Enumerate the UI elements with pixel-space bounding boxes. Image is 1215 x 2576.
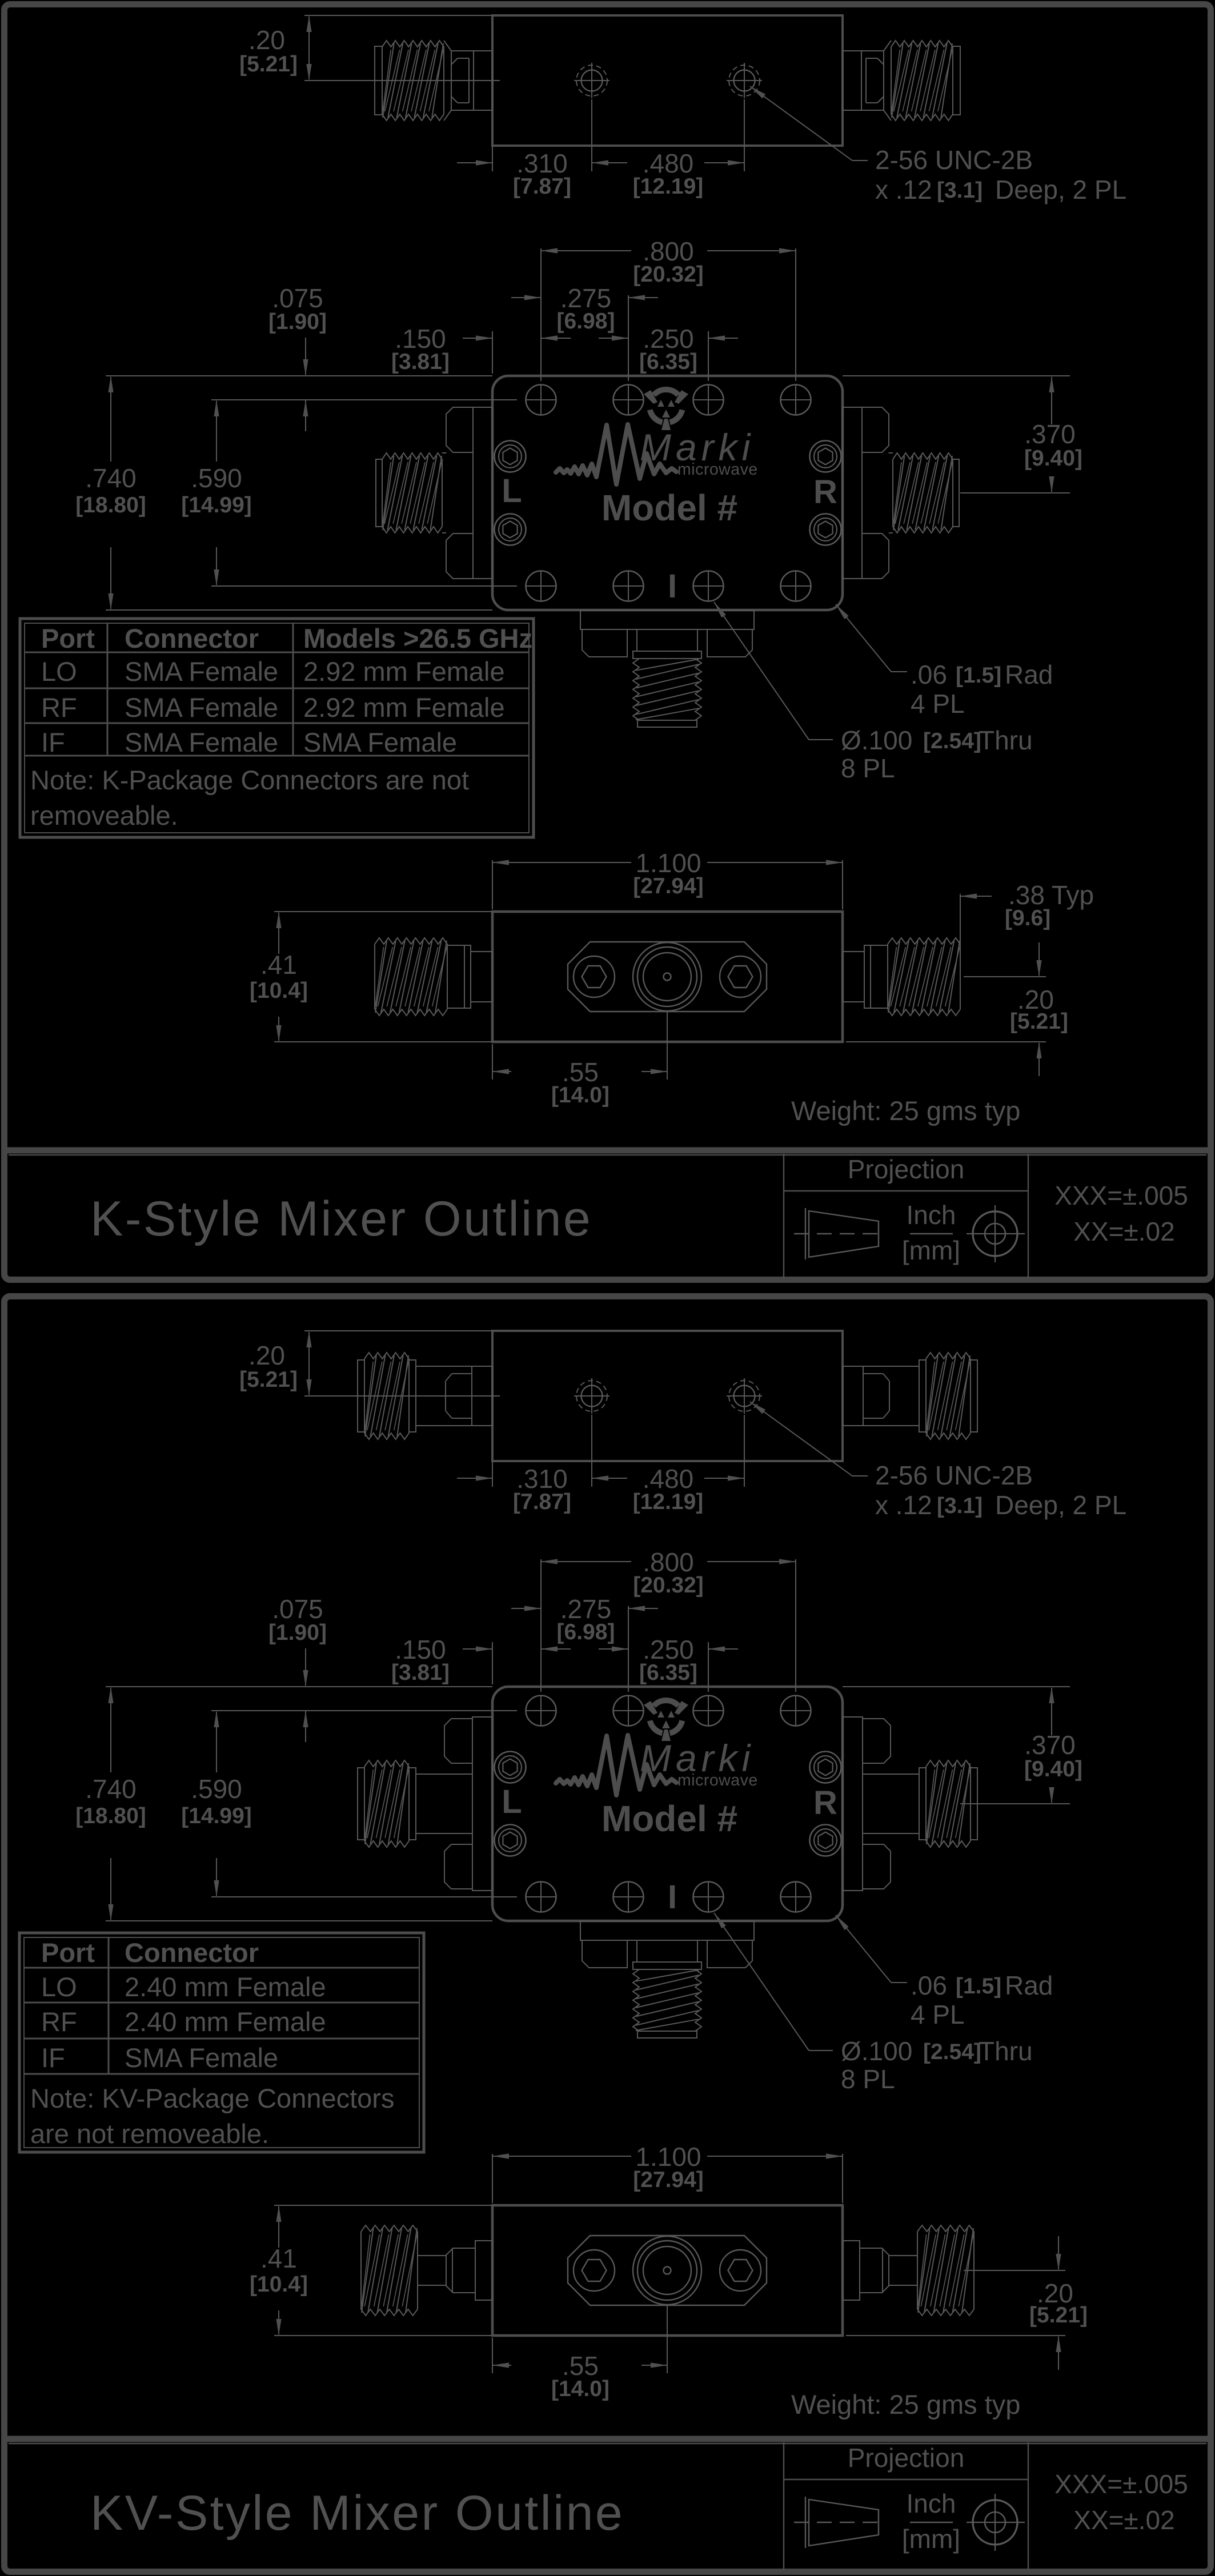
svg-text:[6.98]: [6.98] xyxy=(557,1620,615,1644)
svg-text:[9.6]: [9.6] xyxy=(1005,906,1050,930)
svg-text:[1.5]: [1.5] xyxy=(956,663,1001,688)
svg-text:Inch: Inch xyxy=(907,2489,956,2518)
svg-text:RF: RF xyxy=(41,2007,77,2037)
svg-text:[5.21]: [5.21] xyxy=(1010,1009,1068,1034)
svg-text:[12.19]: [12.19] xyxy=(633,174,704,199)
svg-text:[1.90]: [1.90] xyxy=(268,310,327,334)
svg-text:Weight: 25 gms typ: Weight: 25 gms typ xyxy=(791,1096,1020,1126)
svg-text:SMA Female: SMA Female xyxy=(125,656,278,687)
svg-text:Thru: Thru xyxy=(979,2036,1033,2066)
svg-text:.075: .075 xyxy=(272,283,323,313)
svg-text:RF: RF xyxy=(41,692,77,723)
svg-text:[20.32]: [20.32] xyxy=(633,262,704,287)
svg-text:Weight: 25 gms typ: Weight: 25 gms typ xyxy=(791,2389,1020,2419)
svg-text:I: I xyxy=(668,568,677,605)
svg-text:Ø.100: Ø.100 xyxy=(841,725,912,755)
svg-text:LO: LO xyxy=(41,1972,77,2002)
svg-text:Model #: Model # xyxy=(602,487,737,528)
svg-text:[9.40]: [9.40] xyxy=(1024,1757,1082,1781)
svg-text:microwave: microwave xyxy=(677,460,758,479)
svg-text:Connector: Connector xyxy=(125,623,259,653)
svg-text:x .12: x .12 xyxy=(875,175,932,204)
svg-text:2.92 mm Female: 2.92 mm Female xyxy=(303,692,505,723)
svg-text:2-56 UNC-2B: 2-56 UNC-2B xyxy=(875,1460,1033,1490)
svg-text:.370: .370 xyxy=(1024,419,1076,449)
svg-text:[6.35]: [6.35] xyxy=(639,350,697,374)
svg-text:[5.21]: [5.21] xyxy=(239,52,298,77)
svg-text:K-Style Mixer Outline: K-Style Mixer Outline xyxy=(90,1191,592,1246)
svg-text:[10.4]: [10.4] xyxy=(250,978,308,1003)
svg-text:removeable.: removeable. xyxy=(30,800,178,830)
svg-text:SMA Female: SMA Female xyxy=(125,2043,278,2073)
svg-text:8 PL: 8 PL xyxy=(841,753,895,783)
svg-text:[18.80]: [18.80] xyxy=(75,1804,146,1828)
svg-text:.370: .370 xyxy=(1024,1730,1076,1760)
svg-text:[6.35]: [6.35] xyxy=(639,1660,697,1685)
svg-text:Thru: Thru xyxy=(979,725,1033,755)
svg-text:Projection: Projection xyxy=(848,2443,965,2473)
svg-text:2-56 UNC-2B: 2-56 UNC-2B xyxy=(875,145,1033,175)
svg-text:Note: K-Package Connectors are: Note: K-Package Connectors are not xyxy=(30,765,469,795)
svg-text:Models >26.5 GHz: Models >26.5 GHz xyxy=(303,623,532,653)
svg-text:[7.87]: [7.87] xyxy=(513,174,571,199)
svg-text:.20: .20 xyxy=(248,25,285,55)
svg-text:4 PL: 4 PL xyxy=(911,689,965,719)
svg-text:Port: Port xyxy=(41,623,95,653)
svg-text:Rad: Rad xyxy=(1005,1971,1053,2000)
svg-text:LO: LO xyxy=(41,656,77,687)
svg-text:.740: .740 xyxy=(85,1774,137,1804)
svg-text:.41: .41 xyxy=(260,2244,297,2273)
svg-text:2.40 mm Female: 2.40 mm Female xyxy=(125,2007,326,2037)
svg-text:[3.1]: [3.1] xyxy=(937,178,983,203)
svg-text:x .12: x .12 xyxy=(875,1490,932,1520)
svg-text:2.92 mm Female: 2.92 mm Female xyxy=(303,656,505,687)
svg-text:.06: .06 xyxy=(911,1971,947,2000)
svg-text:[14.99]: [14.99] xyxy=(181,1804,252,1828)
svg-text:4 PL: 4 PL xyxy=(911,2000,965,2029)
svg-text:[3.81]: [3.81] xyxy=(391,1660,450,1685)
svg-text:.590: .590 xyxy=(191,463,242,493)
svg-text:Ø.100: Ø.100 xyxy=(841,2036,912,2066)
svg-text:[mm]: [mm] xyxy=(902,1235,960,1265)
svg-text:Deep, 2 PL: Deep, 2 PL xyxy=(995,1490,1126,1520)
svg-text:KV-Style Mixer Outline: KV-Style Mixer Outline xyxy=(90,2486,624,2541)
svg-text:Deep, 2 PL: Deep, 2 PL xyxy=(995,175,1126,204)
svg-text:.41: .41 xyxy=(260,950,297,980)
svg-text:XXX=±.005: XXX=±.005 xyxy=(1054,2469,1188,2499)
svg-text:[9.40]: [9.40] xyxy=(1024,446,1082,471)
svg-text:microwave: microwave xyxy=(677,1771,758,1789)
svg-text:Connector: Connector xyxy=(125,1937,259,1968)
svg-text:[1.90]: [1.90] xyxy=(268,1620,327,1645)
svg-text:XX=±.02: XX=±.02 xyxy=(1073,2505,1174,2535)
svg-text:[3.1]: [3.1] xyxy=(937,1494,983,1518)
svg-text:SMA Female: SMA Female xyxy=(125,727,278,757)
svg-text:IF: IF xyxy=(41,2043,65,2073)
svg-text:8 PL: 8 PL xyxy=(841,2064,895,2094)
svg-text:[mm]: [mm] xyxy=(902,2524,960,2554)
svg-text:[18.80]: [18.80] xyxy=(75,493,146,517)
svg-text:XXX=±.005: XXX=±.005 xyxy=(1054,1181,1188,1210)
svg-text:L: L xyxy=(502,472,522,509)
svg-text:[6.98]: [6.98] xyxy=(557,309,615,334)
svg-text:[27.94]: [27.94] xyxy=(633,2168,704,2192)
svg-text:[20.32]: [20.32] xyxy=(633,1573,704,1598)
svg-text:[14.0]: [14.0] xyxy=(551,2377,609,2401)
svg-text:[7.87]: [7.87] xyxy=(513,1490,571,1514)
svg-text:XX=±.02: XX=±.02 xyxy=(1073,1217,1174,1246)
svg-text:[10.4]: [10.4] xyxy=(250,2272,308,2297)
svg-text:[2.54]: [2.54] xyxy=(923,2040,981,2064)
svg-text:Note: KV-Package Connectors: Note: KV-Package Connectors xyxy=(30,2083,394,2113)
svg-text:.740: .740 xyxy=(85,463,137,493)
svg-text:Projection: Projection xyxy=(848,1154,965,1184)
svg-text:[5.21]: [5.21] xyxy=(1029,2303,1088,2328)
svg-text:IF: IF xyxy=(41,727,65,757)
svg-text:L: L xyxy=(502,1783,522,1820)
svg-text:Port: Port xyxy=(41,1937,95,1968)
svg-text:Inch: Inch xyxy=(907,1200,956,1230)
svg-text:[1.5]: [1.5] xyxy=(956,1974,1001,1999)
svg-text:[27.94]: [27.94] xyxy=(633,874,704,898)
svg-text:R: R xyxy=(813,1784,837,1821)
svg-text:R: R xyxy=(813,474,837,511)
svg-text:.075: .075 xyxy=(272,1594,323,1624)
svg-text:Model #: Model # xyxy=(602,1798,737,1839)
svg-text:.590: .590 xyxy=(191,1774,242,1804)
svg-text:SMA Female: SMA Female xyxy=(303,727,457,757)
svg-text:[2.54]: [2.54] xyxy=(923,729,981,753)
svg-text:2.40 mm Female: 2.40 mm Female xyxy=(125,1972,326,2002)
svg-text:Rad: Rad xyxy=(1005,660,1053,689)
svg-text:I: I xyxy=(668,1879,677,1916)
svg-text:.06: .06 xyxy=(911,660,947,689)
svg-text:[3.81]: [3.81] xyxy=(391,350,450,374)
svg-text:are not removeable.: are not removeable. xyxy=(30,2118,269,2149)
svg-text:[14.0]: [14.0] xyxy=(551,1083,609,1108)
svg-text:[14.99]: [14.99] xyxy=(181,493,252,517)
svg-text:SMA Female: SMA Female xyxy=(125,692,278,723)
svg-text:[12.19]: [12.19] xyxy=(633,1490,704,1514)
svg-text:[5.21]: [5.21] xyxy=(239,1367,298,1392)
svg-text:.20: .20 xyxy=(248,1341,285,1370)
